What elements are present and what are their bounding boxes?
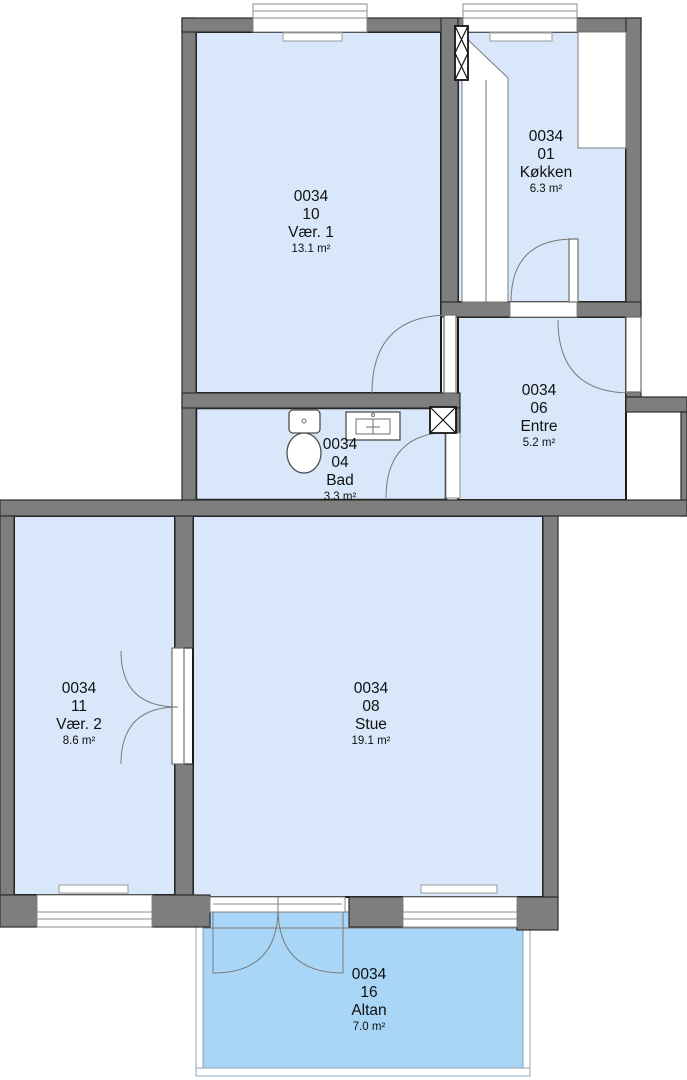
kitchen-counter-right	[578, 32, 626, 148]
window-koekken-top	[463, 4, 577, 32]
floor-plan-canvas	[0, 0, 687, 1080]
radiator-vaer1	[283, 33, 342, 41]
duct-marker-bad	[430, 407, 456, 433]
floor-plan: 0034 10 Vær. 1 13.1 m² 0034 01 Køkken 6.…	[0, 0, 687, 1080]
room-floors	[14, 32, 626, 897]
balcony-railing-left	[196, 920, 203, 1076]
wall-segment	[182, 393, 460, 408]
wall-segment	[577, 302, 641, 317]
wall-segment	[349, 897, 403, 927]
room-stue-floor	[193, 516, 543, 897]
toilet-fixture	[287, 410, 321, 473]
wall-segment	[0, 516, 14, 895]
vent-hatch-koekken	[455, 26, 468, 80]
radiator-stue	[421, 885, 497, 893]
window-vaer1-top	[253, 4, 367, 32]
wall-segment	[175, 516, 193, 648]
wall-segment	[0, 500, 687, 516]
balcony-railing-right	[523, 930, 530, 1076]
wall-segment	[182, 18, 253, 32]
wall-segment	[543, 516, 558, 897]
room-entre-floor	[458, 317, 626, 500]
wall-segment	[152, 895, 210, 927]
room-vaer1-floor	[196, 32, 441, 393]
radiator-koekken	[490, 33, 552, 41]
radiator-vaer2	[59, 885, 128, 893]
wall-segment	[626, 397, 687, 412]
balcony-floor	[203, 912, 523, 1070]
balcony	[196, 912, 530, 1076]
wall-segment	[182, 18, 196, 505]
window-vaer2-bottom	[37, 895, 152, 927]
window-stue-bottom	[403, 897, 517, 927]
wall-segment	[517, 897, 558, 930]
wall-segment	[626, 18, 641, 317]
sink-fixture	[346, 412, 400, 440]
wall-segment	[175, 764, 193, 895]
room-vaer2-floor	[14, 516, 175, 895]
wall-segment	[0, 895, 37, 927]
balcony-railing-bottom	[196, 1068, 530, 1076]
